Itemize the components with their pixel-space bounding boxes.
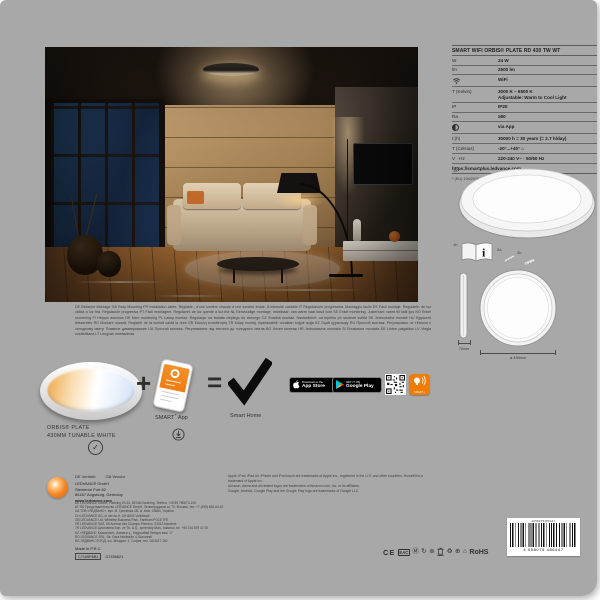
spec-row-wattage: W 24 W: [452, 56, 597, 66]
product-drawing-side: [455, 272, 473, 345]
product-name-line2: 430MM TUNABLE WHITE: [47, 433, 116, 439]
eac-mark: EAC: [398, 549, 410, 556]
product-title: SMART WIFI ORBIS® PLATE RD 430 TW WT: [452, 45, 597, 56]
production-code: G7456621: [105, 555, 123, 559]
app-word: App: [177, 415, 188, 421]
spec-value: ≥80: [498, 114, 506, 120]
spec-row-cct: T (Kelvin) 3000 K – 6500 KAdjustable: Wa…: [452, 87, 597, 102]
packaging-sheet: SMART WIFI ORBIS® PLATE RD 430 TW WT W 2…: [0, 0, 597, 596]
plate-tunable-glow: [47, 368, 135, 412]
app-store-badge-text: Download on the App Store: [302, 381, 325, 389]
smart-app-label: SMART+ App: [155, 413, 188, 421]
spec-value: 24 W: [498, 58, 509, 64]
spec-label: Ra: [452, 114, 498, 120]
apple-icon: [293, 376, 300, 394]
diameter-dimension-line: [480, 353, 556, 354]
spec-label: W: [452, 58, 498, 64]
qr-code: [385, 374, 406, 395]
drawing-label-2b: 2b: [517, 250, 521, 255]
badge-bottom-text: Google Play: [346, 384, 374, 389]
app-store-badge: Download on the App Store: [289, 377, 335, 393]
cct-range: 3000 K – 6500 K: [498, 89, 533, 94]
plus-sign: +: [136, 368, 151, 399]
spec-label: T (Kelvin): [452, 89, 498, 100]
metrology-mark: Ⓜ: [412, 549, 419, 556]
vendor-heading-gb: GB Vendor: [105, 474, 125, 479]
spec-value: 2500 lm: [498, 67, 515, 73]
spec-value: 3000 K – 6500 KAdjustable: Warm to Cool …: [498, 89, 566, 100]
smart-home-checkmark: [228, 358, 272, 411]
spec-value: 220-240 V~ · 50/60 Hz: [498, 156, 544, 162]
smartplus-app-icon: SMART+: [409, 374, 430, 395]
download-icon: [172, 428, 185, 446]
certification-icons-row: CE EAC Ⓜ ↻ ⊛ ♻ ⊕ ⌂ RoHS: [383, 543, 488, 561]
screw-icon: [503, 250, 517, 268]
spec-value: IP20: [498, 104, 507, 110]
spec-row-cri: Ra ≥80: [452, 113, 597, 123]
dim-icon: [452, 124, 498, 132]
app-logo-circle: [170, 368, 181, 379]
badge-bottom-text: App Store: [302, 384, 325, 389]
lifestyle-photo: [45, 47, 418, 302]
spec-row-lifetime: t (h) 30000 h = 30 years (= 2.7 h/day): [452, 134, 597, 144]
spec-row-voltage: V · Hz 220-240 V~ · 50/60 Hz: [452, 154, 597, 164]
smart-home-label: Smart Home: [230, 413, 261, 419]
spec-label: t (h): [452, 136, 498, 142]
spec-label: IP: [452, 104, 498, 110]
product-name: ORBIS® PLATE 430MM TUNABLE WHITE: [47, 424, 116, 440]
production-code-boxed: C7106P6B1: [75, 553, 101, 560]
indoor-house-icon: ⌂: [463, 549, 467, 556]
spec-row-ip: IP IP20: [452, 103, 597, 113]
spec-row-dimming: via App: [452, 122, 597, 134]
product-image-orbis-plate: [40, 362, 142, 420]
barcode-number: 4 058075 486447: [510, 547, 577, 552]
vendor-city: 86167 Augsburg, Germany: [75, 492, 123, 498]
check-glyph: ✓: [92, 443, 99, 452]
spec-row-temperature: T (Celsius) -20°...+40° ⌂: [452, 144, 597, 154]
app-list-line: [160, 399, 172, 403]
spec-row-lumen: lm 2500 lm: [452, 66, 597, 76]
vendor-heading: DE Vertrieb GB Vendor: [75, 474, 125, 479]
spec-label: V · Hz: [452, 156, 498, 162]
barcode-label: 4058075486447 4 058075 486447: [507, 518, 580, 556]
made-in-label: Made in P.R.C.: [75, 546, 102, 551]
temp-range: -20°...+40°: [498, 146, 520, 151]
spec-table: SMART WIFI ORBIS® PLATE RD 430 TW WT W 2…: [452, 45, 597, 181]
spec-label: lm: [452, 67, 498, 73]
height-dimension-line: [458, 343, 471, 344]
trademark-notices: Apple, iPad, iPad Air, iPhone and iPod t…: [228, 474, 432, 494]
app-brand: SMART: [155, 415, 174, 421]
ce-mark: CE: [383, 548, 395, 557]
recycle-arrow-icon: ↻: [421, 549, 426, 556]
equals-sign: =: [207, 367, 222, 398]
production-codes: C7106P6B1 G7456621: [75, 553, 123, 560]
circled-plus-icon: ⊕: [455, 549, 460, 556]
spec-value: -20°...+40° ⌂: [498, 146, 524, 152]
photo-vignette: [45, 47, 418, 302]
spec-row-wifi: WiFi: [452, 75, 597, 87]
check-circle-icon: ✓: [88, 440, 103, 455]
wifi-icon: [452, 77, 498, 85]
smartplus-app-icon-label: SMART+: [409, 391, 430, 394]
international-addresses: DE LEDVANCE GmbH, Parkring 29-33, 85748 …: [75, 501, 250, 543]
weee-bin-icon: [437, 543, 444, 561]
cct-note: Adjustable: Warm to Cool Light: [498, 95, 566, 100]
rohs-label: RoHS: [469, 549, 488, 556]
ledvance-logo: [47, 477, 68, 498]
spec-value: WiFi: [498, 77, 508, 85]
multilingual-legal-text: DE Einfache Montage GB Easy Mounting FR …: [75, 305, 431, 337]
manual-booklet-icon: i: [460, 240, 494, 269]
smartphone-image: [152, 358, 193, 413]
vendor-heading-de: DE Vertrieb: [75, 474, 95, 479]
barcode-bars: [510, 523, 577, 547]
app-screen-line: [165, 383, 175, 386]
certification-star-icon: ⊛: [429, 549, 434, 556]
drawing-label-1b: 1b: [453, 242, 457, 247]
product-name-line1: ORBIS® PLATE: [47, 425, 90, 431]
google-play-badge-text: GET IT ON Google Play: [346, 381, 374, 389]
drawing-label-2a: 2a: [497, 247, 501, 252]
spec-label: T (Celsius): [452, 146, 498, 152]
product-drawing-perspective: [456, 165, 597, 246]
spec-value: 30000 h = 30 years (= 2.7 h/day): [498, 136, 566, 142]
play-triangle-icon: [336, 376, 344, 394]
google-play-badge: GET IT ON Google Play: [332, 377, 382, 393]
spec-value: via App: [498, 124, 514, 132]
indoor-use-icon: ⌂: [521, 146, 524, 152]
product-drawing-front: [478, 268, 558, 353]
recycle-icon: ♻: [447, 549, 453, 556]
height-dimension-label: 70mm: [450, 347, 478, 351]
diameter-dimension-label: ø 430mm: [490, 356, 546, 360]
